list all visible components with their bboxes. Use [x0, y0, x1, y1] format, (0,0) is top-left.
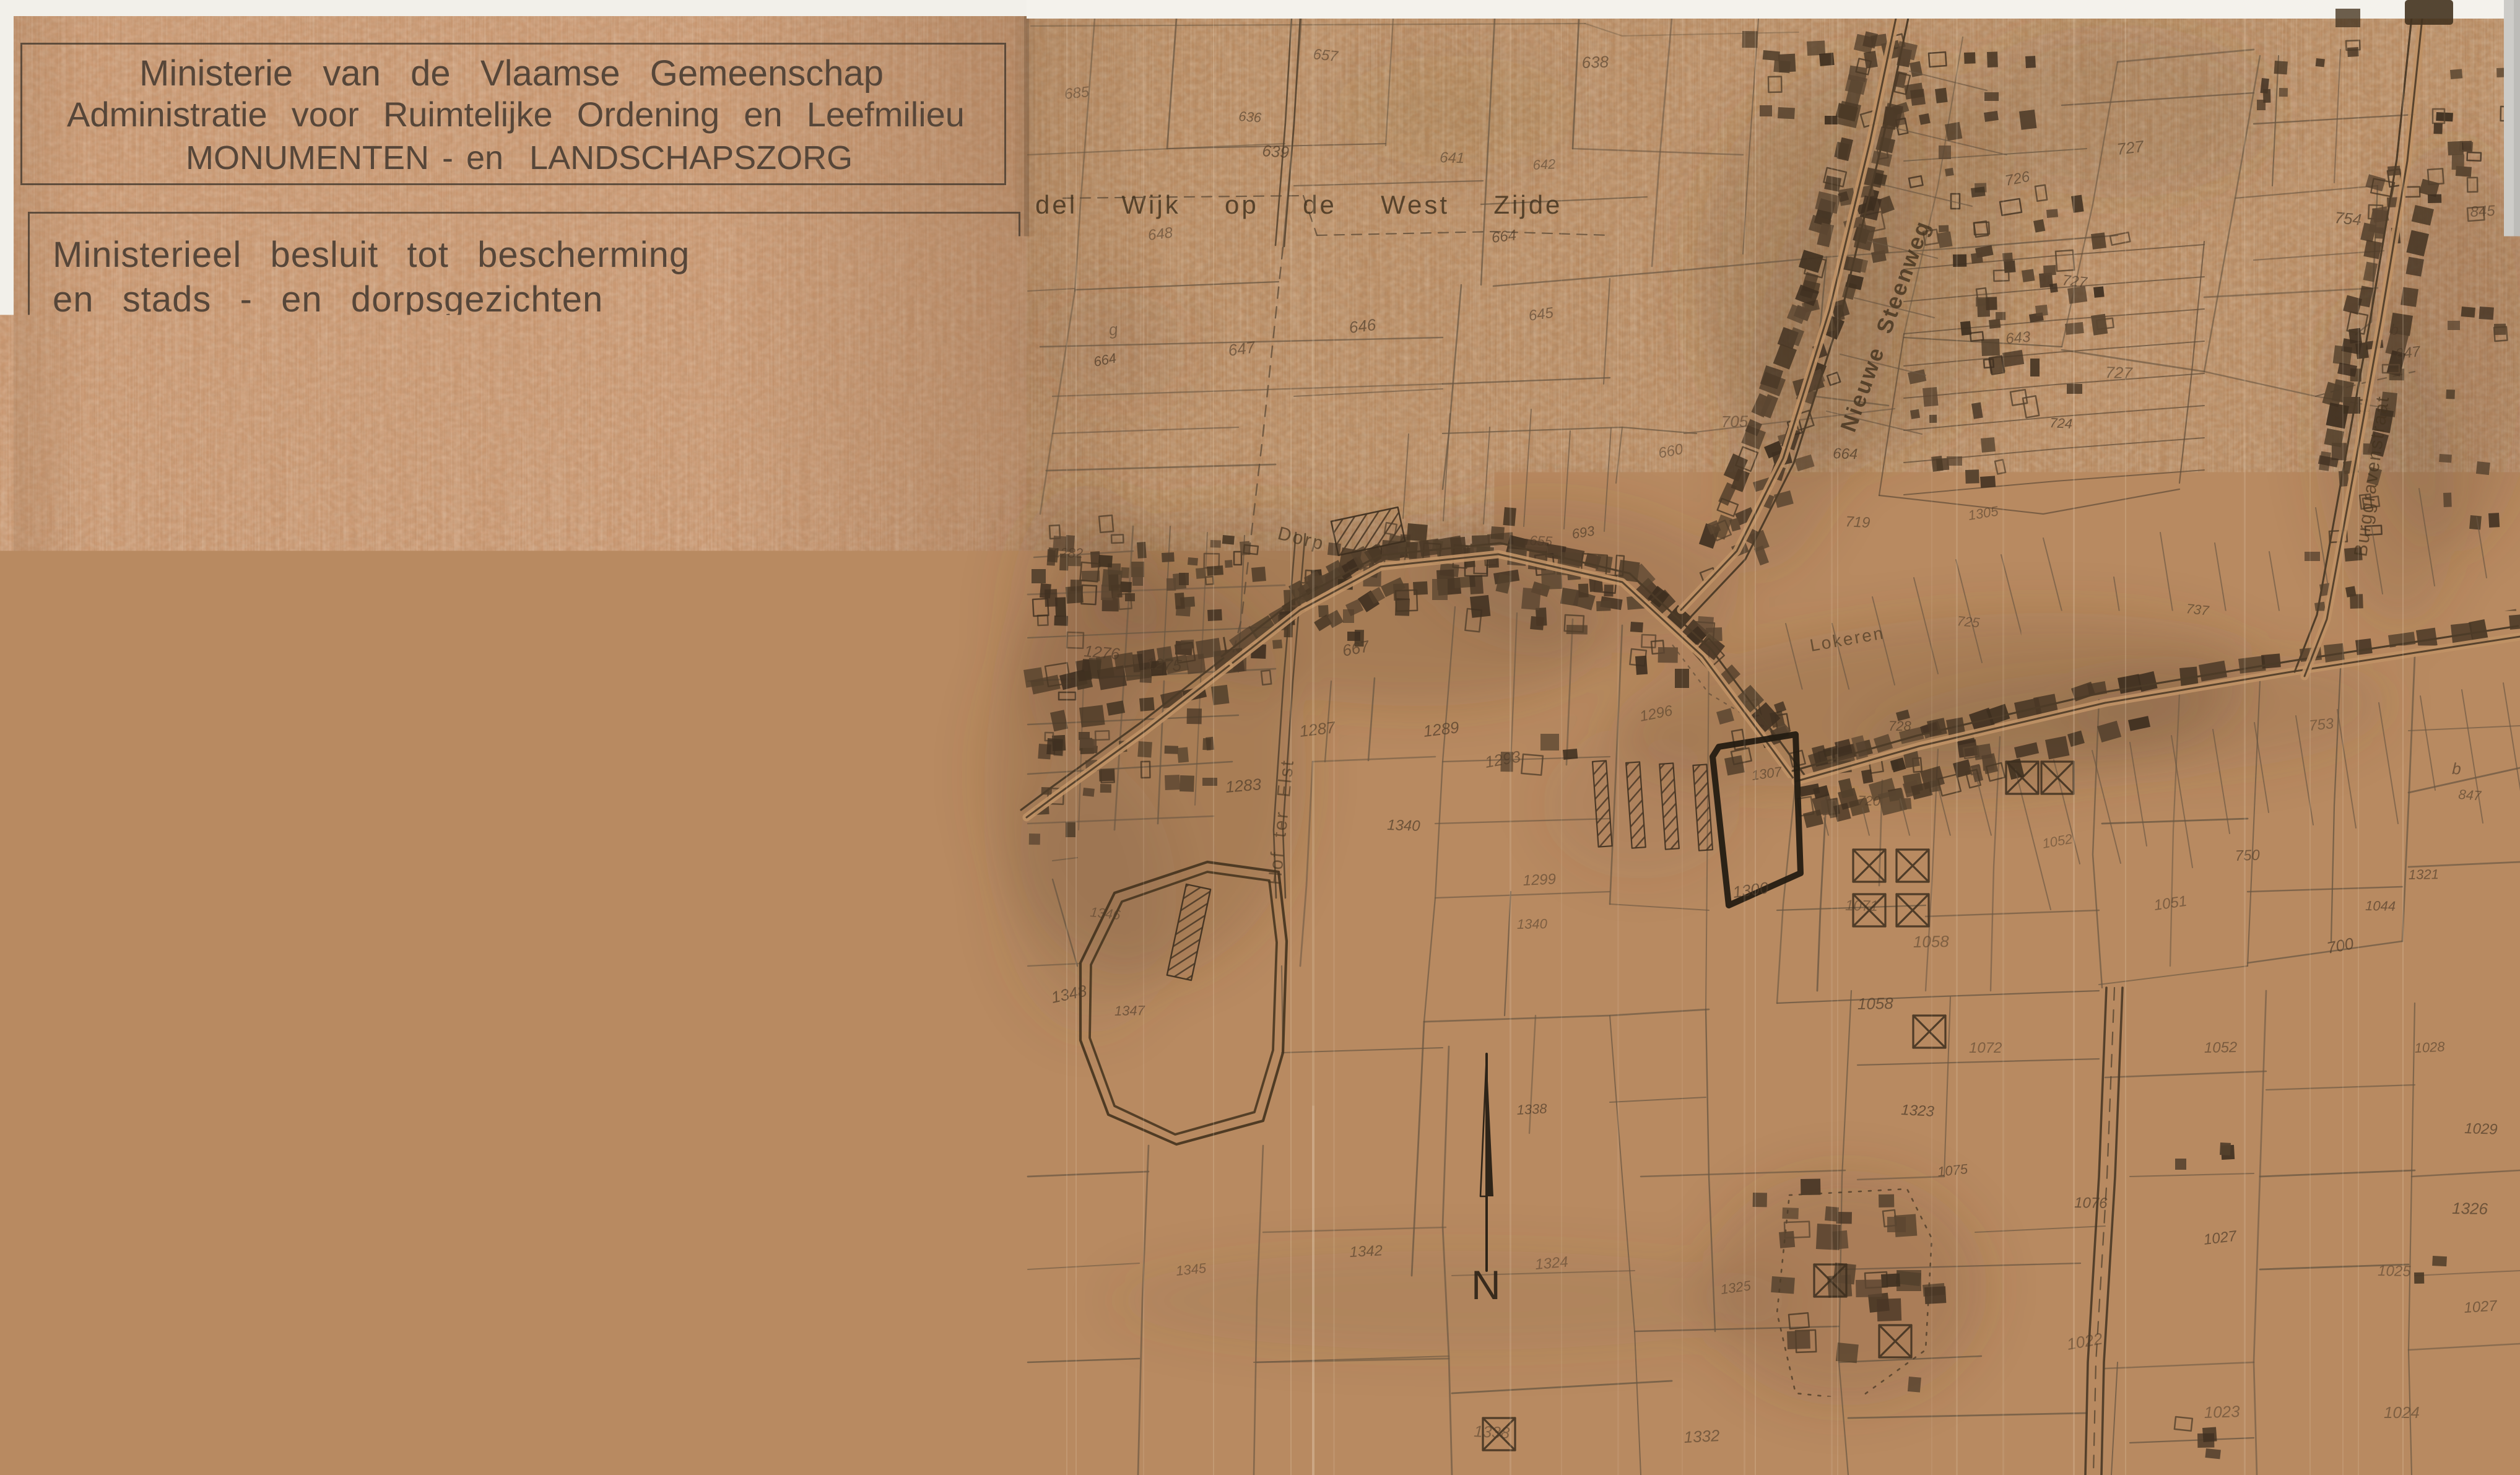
svg-text:685: 685 [1064, 84, 1090, 103]
svg-text:1023: 1023 [2204, 1402, 2240, 1422]
svg-text:664: 664 [1490, 227, 1517, 246]
svg-text:1340: 1340 [1387, 940, 1421, 957]
svg-text:1029: 1029 [2464, 1120, 2498, 1138]
svg-text:642: 642 [1532, 156, 1556, 173]
svg-text:1044: 1044 [2365, 898, 2396, 914]
svg-text:727: 727 [2105, 363, 2134, 383]
svg-text:728: 728 [1888, 718, 1911, 734]
svg-text:725: 725 [1957, 613, 1981, 630]
svg-text:b: b [2452, 759, 2462, 778]
svg-text:727: 727 [1812, 45, 1840, 66]
svg-text:1344: 1344 [1288, 1162, 1324, 1181]
svg-text:1282: 1282 [1053, 545, 1083, 561]
svg-text:b: b [2390, 321, 2399, 339]
svg-text:1076: 1076 [2074, 1194, 2108, 1212]
svg-text:756: 756 [2419, 89, 2446, 109]
svg-text:646: 646 [1348, 315, 1377, 337]
svg-text:1341: 1341 [1337, 1071, 1371, 1089]
svg-text:750: 750 [2235, 847, 2261, 864]
svg-text:N: N [1471, 1262, 1501, 1308]
svg-text:719: 719 [1845, 513, 1870, 531]
svg-text:1340: 1340 [1387, 817, 1421, 835]
svg-text:1275: 1275 [1145, 654, 1183, 675]
svg-text:1024: 1024 [2384, 1403, 2420, 1422]
svg-text:1072: 1072 [1969, 1040, 2002, 1056]
svg-text:1058: 1058 [1857, 994, 1894, 1013]
svg-text:1025: 1025 [2378, 1263, 2412, 1280]
svg-text:643: 643 [2005, 329, 2031, 347]
svg-text:1324: 1324 [1534, 1253, 1569, 1273]
svg-text:1323: 1323 [1901, 1102, 1935, 1120]
svg-text:1075: 1075 [1937, 1161, 1969, 1180]
svg-text:1342: 1342 [1349, 1242, 1383, 1261]
svg-text:655: 655 [1529, 533, 1553, 549]
svg-text:1343: 1343 [1275, 1001, 1313, 1021]
svg-text:753: 753 [2308, 715, 2335, 734]
svg-text:1338: 1338 [1516, 1100, 1548, 1118]
svg-text:1347: 1347 [1114, 1003, 1145, 1019]
svg-text:720: 720 [1857, 793, 1881, 809]
svg-text:724: 724 [2049, 415, 2073, 432]
svg-text:737: 737 [2185, 601, 2210, 619]
svg-text:657: 657 [1312, 46, 1339, 65]
svg-text:727: 727 [2061, 272, 2088, 291]
svg-text:del Wijk op de West Zijde: del Wijk op de West Zijde [1035, 190, 1562, 219]
svg-text:1283: 1283 [1225, 775, 1262, 796]
svg-text:636: 636 [1238, 108, 1262, 126]
svg-text:1299: 1299 [1523, 871, 1557, 889]
svg-text:1027: 1027 [2464, 1297, 2499, 1316]
svg-text:847: 847 [2394, 343, 2422, 363]
svg-text:1338: 1338 [1474, 1422, 1511, 1442]
svg-text:639: 639 [1262, 141, 1290, 162]
svg-text:1340: 1340 [1517, 916, 1548, 932]
svg-text:1345: 1345 [1175, 1260, 1207, 1279]
svg-text:638: 638 [1581, 52, 1609, 72]
svg-text:664: 664 [1833, 445, 1858, 463]
svg-text:648: 648 [1147, 224, 1174, 244]
svg-text:a: a [1893, 1076, 1903, 1094]
svg-text:647: 647 [1227, 337, 1258, 360]
svg-text:1276: 1276 [1083, 642, 1121, 663]
svg-text:1326: 1326 [2452, 1199, 2488, 1218]
svg-text:641: 641 [1440, 149, 1465, 167]
svg-text:1332: 1332 [1684, 1426, 1721, 1447]
svg-text:645: 645 [1527, 305, 1555, 324]
svg-text:1028: 1028 [2414, 1038, 2446, 1056]
svg-text:845: 845 [2470, 202, 2496, 220]
svg-text:847: 847 [2458, 786, 2482, 804]
svg-text:727: 727 [2116, 137, 2145, 159]
svg-text:1071: 1071 [1845, 897, 1879, 915]
svg-text:1346: 1346 [1089, 904, 1121, 923]
svg-text:1052: 1052 [2204, 1039, 2238, 1056]
svg-text:1321: 1321 [2409, 866, 2439, 882]
svg-text:1078: 1078 [1969, 1399, 2003, 1417]
